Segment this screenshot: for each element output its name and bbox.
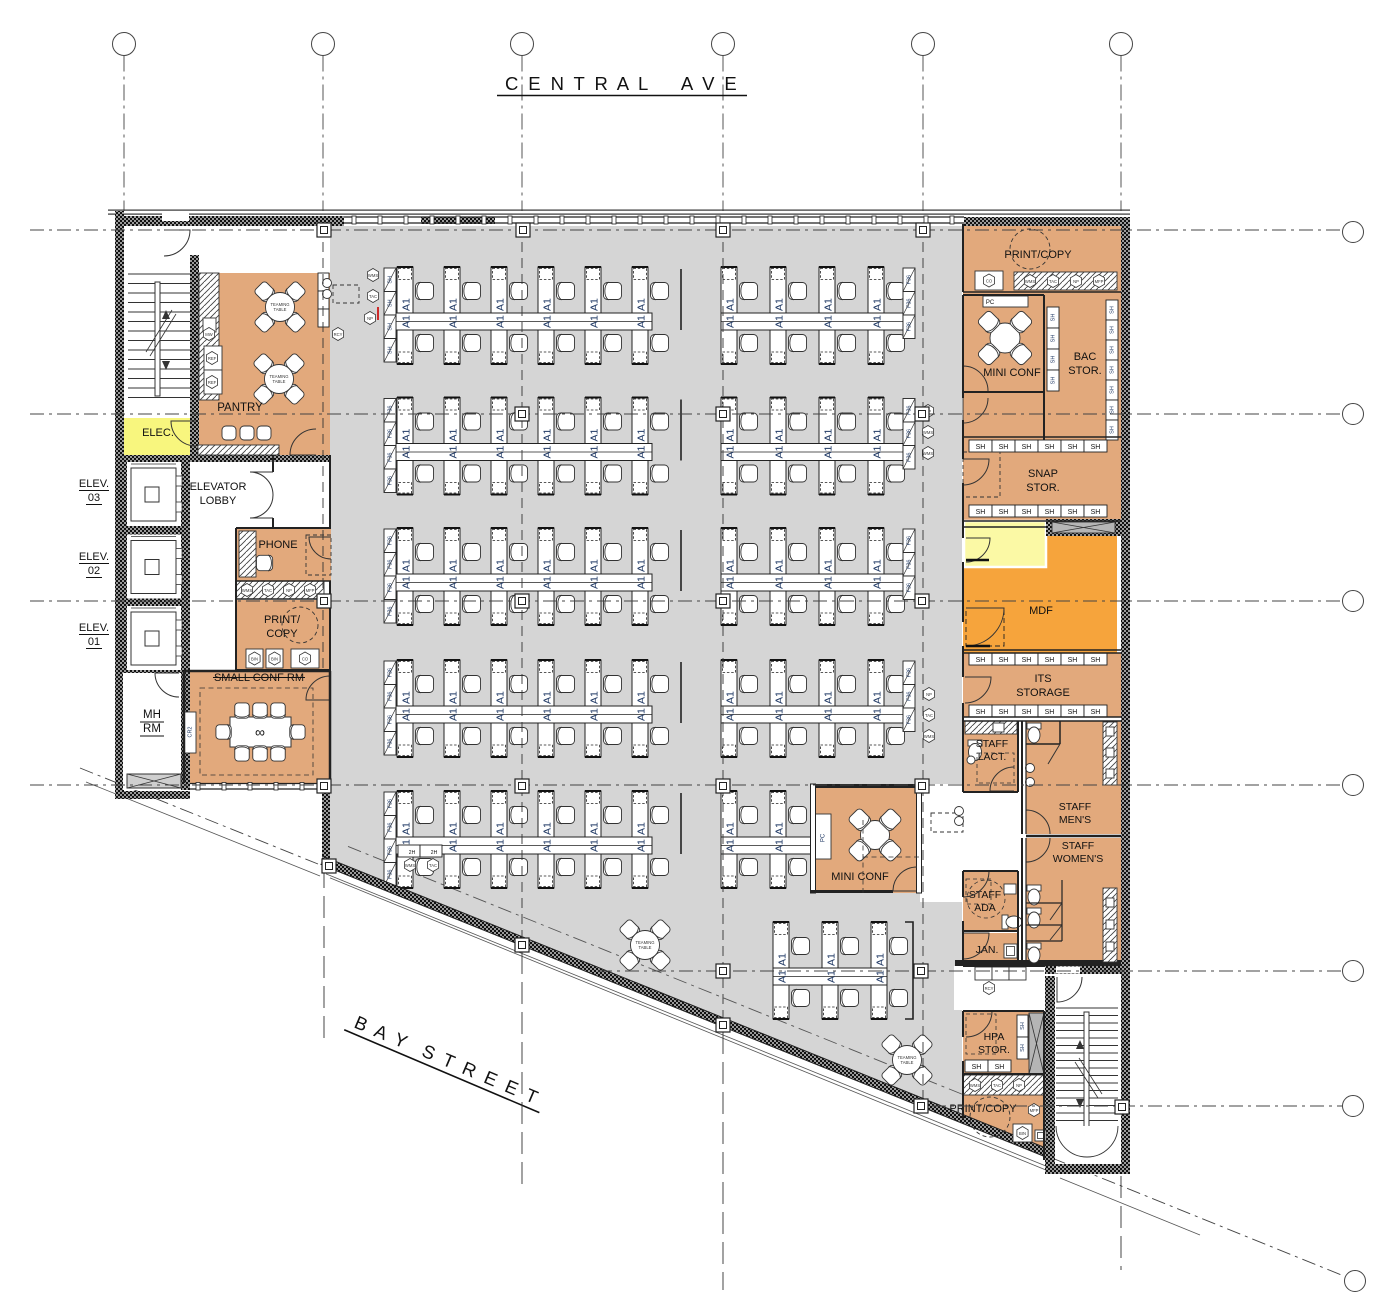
svg-text:TAC: TAC xyxy=(993,1083,1001,1088)
svg-text:MDF: MDF xyxy=(1029,605,1053,617)
svg-text:A1: A1 xyxy=(823,298,835,311)
svg-text:A1: A1 xyxy=(823,559,835,572)
svg-text:STAFF: STAFF xyxy=(1059,801,1091,813)
svg-text:A1: A1 xyxy=(589,298,601,311)
svg-text:A1: A1 xyxy=(495,559,507,572)
svg-text:F36: F36 xyxy=(907,322,913,331)
svg-text:SNAP: SNAP xyxy=(1028,468,1058,480)
svg-text:A1: A1 xyxy=(542,315,554,328)
svg-text:F36: F36 xyxy=(388,560,394,569)
svg-text:PRINT/COPY: PRINT/COPY xyxy=(1004,249,1072,261)
svg-text:A1: A1 xyxy=(495,298,507,311)
svg-text:A1: A1 xyxy=(542,445,554,458)
svg-text:A1: A1 xyxy=(725,822,737,835)
svg-text:A1: A1 xyxy=(826,970,838,983)
svg-text:A1: A1 xyxy=(725,691,737,704)
svg-text:SH: SH xyxy=(1110,426,1116,434)
svg-text:WMS: WMS xyxy=(1025,279,1035,284)
svg-text:SH: SH xyxy=(388,276,394,284)
svg-text:A1: A1 xyxy=(448,298,460,311)
svg-text:TABLE: TABLE xyxy=(273,379,286,384)
svg-text:A1: A1 xyxy=(725,559,737,572)
svg-text:MEN'S: MEN'S xyxy=(1059,814,1091,826)
svg-text:2H: 2H xyxy=(431,850,438,856)
svg-text:F36: F36 xyxy=(388,846,394,855)
svg-text:A1: A1 xyxy=(401,559,413,572)
svg-text:ADA: ADA xyxy=(974,902,996,914)
svg-text:PRINT/COPY: PRINT/COPY xyxy=(949,1103,1017,1115)
svg-text:A1: A1 xyxy=(872,691,884,704)
svg-text:SH: SH xyxy=(1051,377,1057,385)
svg-text:SH: SH xyxy=(388,299,394,307)
svg-text:F36: F36 xyxy=(907,583,913,592)
svg-text:STOR.: STOR. xyxy=(1026,482,1059,494)
svg-text:SH: SH xyxy=(1051,356,1057,364)
svg-text:MINI CONF: MINI CONF xyxy=(831,871,889,883)
svg-text:ELEVATOR: ELEVATOR xyxy=(190,481,247,493)
svg-text:F36: F36 xyxy=(907,692,913,701)
svg-text:SH: SH xyxy=(1091,444,1101,451)
svg-text:BAC: BAC xyxy=(1074,351,1097,363)
svg-text:PRINT/: PRINT/ xyxy=(264,614,301,626)
svg-text:F36: F36 xyxy=(388,715,394,724)
svg-text:ELEC.: ELEC. xyxy=(142,427,174,439)
svg-text:TABLE: TABLE xyxy=(274,307,287,312)
svg-text:A1: A1 xyxy=(448,445,460,458)
svg-text:A1: A1 xyxy=(823,445,835,458)
svg-text:JAN.: JAN. xyxy=(976,944,999,956)
svg-text:F36: F36 xyxy=(388,607,394,616)
svg-text:SH: SH xyxy=(1110,326,1116,334)
svg-text:SH: SH xyxy=(1068,657,1078,664)
svg-text:A1: A1 xyxy=(589,839,601,852)
svg-text:F36: F36 xyxy=(388,799,394,808)
svg-text:TAC: TAC xyxy=(429,863,437,868)
svg-text:ITS: ITS xyxy=(1034,673,1051,685)
svg-text:F36: F36 xyxy=(388,870,394,879)
svg-text:REF: REF xyxy=(208,380,217,385)
svg-text:NP: NP xyxy=(926,692,932,697)
svg-text:NP: NP xyxy=(1016,1083,1022,1088)
svg-text:A1: A1 xyxy=(542,428,554,441)
svg-text:SH: SH xyxy=(972,1064,982,1071)
svg-text:F36: F36 xyxy=(388,823,394,832)
svg-text:A1: A1 xyxy=(777,953,789,966)
svg-text:SH: SH xyxy=(999,509,1009,516)
svg-text:SH: SH xyxy=(1110,366,1116,374)
svg-text:A1: A1 xyxy=(636,315,648,328)
svg-text:SH: SH xyxy=(999,444,1009,451)
svg-text:A1: A1 xyxy=(774,576,786,589)
svg-text:A1: A1 xyxy=(495,839,507,852)
svg-text:A1: A1 xyxy=(448,559,460,572)
svg-text:A1: A1 xyxy=(636,822,648,835)
svg-text:A1: A1 xyxy=(448,315,460,328)
svg-text:SH: SH xyxy=(1045,509,1055,516)
svg-text:A1: A1 xyxy=(823,315,835,328)
svg-text:A1: A1 xyxy=(495,576,507,589)
svg-text:A1: A1 xyxy=(823,576,835,589)
svg-text:SH: SH xyxy=(1051,314,1057,322)
svg-text:BIN: BIN xyxy=(271,656,278,661)
svg-text:A1: A1 xyxy=(542,822,554,835)
svg-text:A1: A1 xyxy=(774,708,786,721)
svg-text:02: 02 xyxy=(88,565,100,577)
svg-text:A1: A1 xyxy=(725,839,737,852)
svg-text:A1: A1 xyxy=(725,576,737,589)
svg-text:WMS: WMS xyxy=(924,734,934,739)
svg-text:A1: A1 xyxy=(872,428,884,441)
svg-text:HPA: HPA xyxy=(984,1031,1005,1043)
svg-text:A1: A1 xyxy=(401,576,413,589)
svg-text:SH: SH xyxy=(388,323,394,331)
svg-text:PANTRY: PANTRY xyxy=(217,402,263,414)
svg-text:A1: A1 xyxy=(774,839,786,852)
svg-text:F36: F36 xyxy=(388,583,394,592)
svg-text:TABLE: TABLE xyxy=(639,945,652,950)
svg-text:F36: F36 xyxy=(907,715,913,724)
svg-text:MINI CONF: MINI CONF xyxy=(983,367,1041,379)
svg-text:F36: F36 xyxy=(388,429,394,438)
svg-text:RCY: RCY xyxy=(985,986,994,991)
svg-text:A1: A1 xyxy=(589,691,601,704)
svg-text:SH: SH xyxy=(1022,709,1032,716)
svg-text:STAFF: STAFF xyxy=(976,738,1008,750)
svg-text:SH: SH xyxy=(1091,709,1101,716)
svg-text:WMS: WMS xyxy=(923,430,933,435)
svg-text:F36: F36 xyxy=(388,536,394,545)
svg-text:A1: A1 xyxy=(495,822,507,835)
svg-text:MFP: MFP xyxy=(1030,1108,1039,1113)
svg-text:A1: A1 xyxy=(636,559,648,572)
svg-text:A1: A1 xyxy=(636,298,648,311)
svg-text:A1: A1 xyxy=(823,428,835,441)
svg-text:A1: A1 xyxy=(589,428,601,441)
svg-text:F36: F36 xyxy=(388,453,394,462)
svg-text:WMS: WMS xyxy=(970,1083,980,1088)
svg-text:A1: A1 xyxy=(448,428,460,441)
svg-text:TAC: TAC xyxy=(369,294,377,299)
svg-text:ELEV.: ELEV. xyxy=(79,478,109,490)
svg-text:MFP: MFP xyxy=(1095,279,1104,284)
svg-text:A1: A1 xyxy=(589,559,601,572)
svg-text:A1: A1 xyxy=(542,839,554,852)
svg-text:ELEV.: ELEV. xyxy=(79,551,109,563)
svg-text:A1: A1 xyxy=(725,428,737,441)
svg-text:SH: SH xyxy=(1110,306,1116,314)
svg-text:A1: A1 xyxy=(875,970,887,983)
svg-text:ELEV.: ELEV. xyxy=(79,622,109,634)
svg-text:WMS: WMS xyxy=(923,451,933,456)
svg-text:SH: SH xyxy=(1051,335,1057,343)
svg-text:SH: SH xyxy=(976,444,986,451)
svg-text:A1: A1 xyxy=(589,315,601,328)
svg-text:A1: A1 xyxy=(872,298,884,311)
svg-text:A1: A1 xyxy=(495,445,507,458)
svg-text:NP: NP xyxy=(286,588,292,593)
svg-text:SH: SH xyxy=(1068,444,1078,451)
svg-text:COPY: COPY xyxy=(266,628,298,640)
svg-text:A1: A1 xyxy=(448,576,460,589)
svg-text:∞: ∞ xyxy=(255,724,265,740)
svg-text:STAFF: STAFF xyxy=(1062,840,1094,852)
svg-text:NP: NP xyxy=(367,316,373,321)
svg-text:A1: A1 xyxy=(774,559,786,572)
svg-text:SH: SH xyxy=(1110,406,1116,414)
svg-text:SH: SH xyxy=(976,709,986,716)
svg-text:F36: F36 xyxy=(388,476,394,485)
svg-text:A1: A1 xyxy=(636,428,648,441)
svg-text:SH: SH xyxy=(1110,346,1116,354)
svg-text:A1: A1 xyxy=(495,315,507,328)
svg-text:A1: A1 xyxy=(401,428,413,441)
svg-text:A1: A1 xyxy=(542,691,554,704)
svg-text:F36: F36 xyxy=(907,299,913,308)
svg-text:RCY: RCY xyxy=(334,332,343,337)
svg-text:SH: SH xyxy=(999,709,1009,716)
svg-text:A1: A1 xyxy=(774,315,786,328)
svg-text:A1: A1 xyxy=(401,445,413,458)
svg-text:A1: A1 xyxy=(589,822,601,835)
svg-text:TAC: TAC xyxy=(925,713,933,718)
svg-text:F36: F36 xyxy=(907,275,913,284)
svg-text:SH: SH xyxy=(1068,709,1078,716)
svg-text:SH: SH xyxy=(1045,709,1055,716)
svg-text:SH: SH xyxy=(1020,1044,1026,1052)
svg-text:SH: SH xyxy=(1022,444,1032,451)
svg-text:A1: A1 xyxy=(542,708,554,721)
svg-text:A1: A1 xyxy=(774,445,786,458)
svg-text:A1: A1 xyxy=(542,298,554,311)
svg-text:CO: CO xyxy=(986,278,993,283)
svg-text:MH: MH xyxy=(143,709,161,721)
svg-text:A1: A1 xyxy=(636,691,648,704)
svg-text:A1: A1 xyxy=(725,708,737,721)
svg-text:A1: A1 xyxy=(875,953,887,966)
svg-text:A1: A1 xyxy=(448,822,460,835)
svg-text:F36: F36 xyxy=(907,668,913,677)
svg-text:SH: SH xyxy=(995,1064,1005,1071)
svg-text:A1: A1 xyxy=(589,576,601,589)
svg-text:F36: F36 xyxy=(388,739,394,748)
svg-text:TAC: TAC xyxy=(1049,279,1057,284)
svg-text:SH: SH xyxy=(1022,657,1032,664)
svg-text:01: 01 xyxy=(88,636,100,648)
svg-text:A1: A1 xyxy=(725,315,737,328)
svg-text:03: 03 xyxy=(88,492,100,504)
svg-text:WMS: WMS xyxy=(368,273,378,278)
svg-text:A1: A1 xyxy=(589,708,601,721)
svg-text:A1: A1 xyxy=(401,298,413,311)
svg-text:A1: A1 xyxy=(725,445,737,458)
svg-text:A1: A1 xyxy=(872,445,884,458)
svg-text:A1: A1 xyxy=(448,691,460,704)
svg-text:A1: A1 xyxy=(448,708,460,721)
svg-text:SH: SH xyxy=(1045,444,1055,451)
svg-text:A1: A1 xyxy=(495,428,507,441)
svg-text:LACT.: LACT. xyxy=(978,751,1007,763)
svg-text:PC: PC xyxy=(821,833,827,842)
svg-text:A1: A1 xyxy=(495,708,507,721)
svg-text:CO: CO xyxy=(302,656,309,661)
svg-text:2H: 2H xyxy=(409,850,416,856)
svg-text:NP: NP xyxy=(1073,279,1079,284)
svg-text:F36: F36 xyxy=(907,429,913,438)
svg-text:A1: A1 xyxy=(448,839,460,852)
svg-text:REF: REF xyxy=(208,356,217,361)
svg-text:RM: RM xyxy=(143,723,161,735)
svg-text:SH: SH xyxy=(1020,1022,1026,1030)
svg-text:BIN: BIN xyxy=(251,656,258,661)
svg-text:WMS: WMS xyxy=(405,863,415,868)
svg-text:A1: A1 xyxy=(774,691,786,704)
svg-text:F36: F36 xyxy=(388,668,394,677)
svg-text:LOBBY: LOBBY xyxy=(200,495,237,507)
svg-text:F36: F36 xyxy=(907,560,913,569)
svg-text:SH: SH xyxy=(976,657,986,664)
svg-text:PC: PC xyxy=(986,300,995,306)
svg-text:A1: A1 xyxy=(636,445,648,458)
svg-text:SH: SH xyxy=(1110,386,1116,394)
svg-text:TABLE: TABLE xyxy=(901,1060,914,1065)
svg-text:A1: A1 xyxy=(401,315,413,328)
svg-text:A1: A1 xyxy=(872,559,884,572)
svg-text:SH: SH xyxy=(1091,657,1101,664)
svg-text:A1: A1 xyxy=(589,445,601,458)
svg-text:STOR.: STOR. xyxy=(1068,365,1101,377)
svg-text:SH: SH xyxy=(388,346,394,354)
svg-text:A1: A1 xyxy=(777,970,789,983)
svg-text:SH: SH xyxy=(999,657,1009,664)
svg-text:F36: F36 xyxy=(388,692,394,701)
svg-text:A1: A1 xyxy=(636,576,648,589)
svg-text:A1: A1 xyxy=(636,708,648,721)
svg-text:SH: SH xyxy=(1045,657,1055,664)
svg-text:TAC: TAC xyxy=(264,588,272,593)
svg-text:A1: A1 xyxy=(823,691,835,704)
svg-text:A1: A1 xyxy=(826,953,838,966)
svg-text:C E N T R A L A V E: C E N T R A L A V E xyxy=(505,73,739,94)
svg-text:PHONE: PHONE xyxy=(258,539,297,551)
svg-text:F36: F36 xyxy=(907,536,913,545)
svg-text:A1: A1 xyxy=(823,708,835,721)
svg-text:A1: A1 xyxy=(401,708,413,721)
svg-text:A1: A1 xyxy=(872,576,884,589)
svg-text:A1: A1 xyxy=(774,298,786,311)
svg-text:A1: A1 xyxy=(636,839,648,852)
svg-text:A1: A1 xyxy=(872,315,884,328)
svg-text:STORAGE: STORAGE xyxy=(1016,687,1070,699)
svg-text:A1: A1 xyxy=(542,576,554,589)
svg-text:SH: SH xyxy=(976,509,986,516)
svg-text:F36: F36 xyxy=(907,453,913,462)
svg-text:WOMEN'S: WOMEN'S xyxy=(1053,853,1103,865)
svg-text:A1: A1 xyxy=(401,822,413,835)
svg-text:SH: SH xyxy=(1022,509,1032,516)
svg-text:WMS: WMS xyxy=(242,588,252,593)
svg-text:CR2: CR2 xyxy=(188,726,194,737)
svg-text:A1: A1 xyxy=(774,428,786,441)
svg-text:MFP: MFP xyxy=(306,588,315,593)
svg-text:MW: MW xyxy=(205,332,212,337)
svg-text:A1: A1 xyxy=(401,691,413,704)
svg-text:A1: A1 xyxy=(495,691,507,704)
svg-text:BIN: BIN xyxy=(1019,1131,1026,1136)
svg-text:A1: A1 xyxy=(774,822,786,835)
svg-text:SH: SH xyxy=(1091,509,1101,516)
svg-text:A1: A1 xyxy=(542,559,554,572)
svg-text:SH: SH xyxy=(1068,509,1078,516)
svg-text:A1: A1 xyxy=(872,708,884,721)
svg-text:A1: A1 xyxy=(725,298,737,311)
